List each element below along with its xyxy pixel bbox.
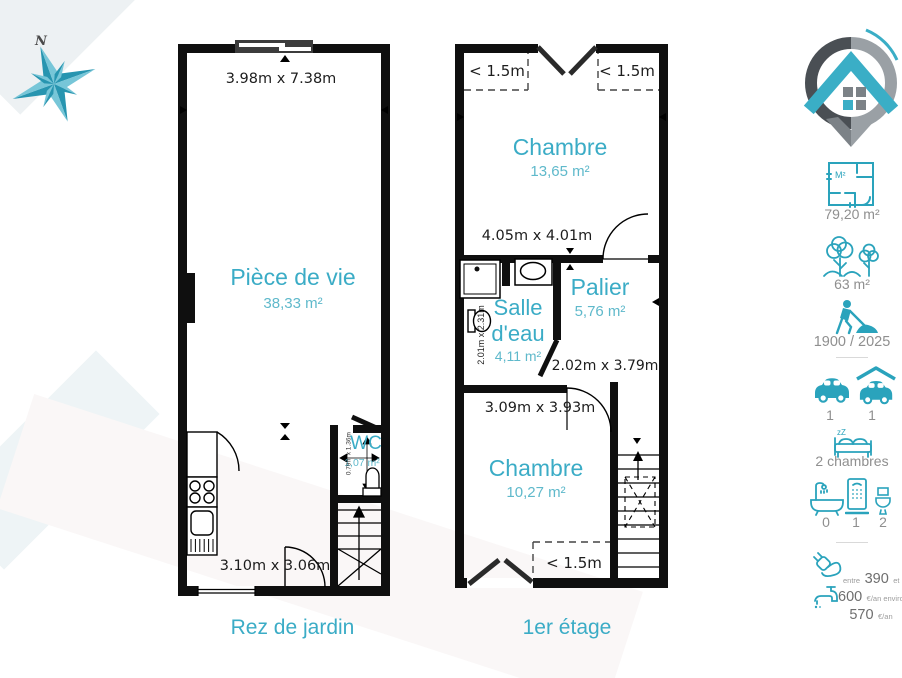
floorplan-page: N <box>0 0 902 678</box>
dim-landing: 2.02m x 3.79m <box>535 359 675 375</box>
years-value: 1900 / 2025 <box>806 334 898 350</box>
construction-worker-icon <box>828 299 880 335</box>
shower-icon <box>845 476 869 516</box>
plug-icon <box>812 551 844 581</box>
car-icon <box>813 373 851 403</box>
dim-bathroom: 2.01m x 2.31m <box>476 290 486 380</box>
window-top <box>235 40 313 62</box>
wc-toilet <box>363 468 381 496</box>
dim-bedroom1: 4.05m x 4.01m <box>462 228 612 244</box>
room-area-bedroom2: 10,27 m² <box>461 485 611 502</box>
floorplan-icon-badge: M² <box>835 170 846 180</box>
compass-north-label: N <box>35 35 47 50</box>
room-area-wc: 1,07 m² <box>331 458 393 470</box>
living-area-value: 79,20 m² <box>810 207 894 223</box>
floor-label-ground: Rez de jardin <box>210 616 375 640</box>
dim-wc: 0.79m x 1.36m <box>345 426 352 482</box>
toilet-count: 2 <box>873 515 893 531</box>
bathtub-icon <box>808 480 846 516</box>
room-label-living: Pièce de vie <box>203 265 383 291</box>
floor-plan-ground <box>178 40 390 600</box>
bedrooms-value: 2 chambres <box>810 454 894 470</box>
water-cost: 600 €/an environ <box>838 588 900 606</box>
room-area-living: 38,33 m² <box>203 296 383 313</box>
floor-label-first: 1er étage <box>487 616 647 640</box>
roof-window-bottom <box>467 560 533 588</box>
dim-living-bottom: 3.10m x 3.06m <box>197 558 353 574</box>
agency-logo <box>802 27 900 155</box>
toilet-icon <box>872 485 894 517</box>
stairs-first <box>618 438 659 567</box>
room-area-bedroom1: 13,65 m² <box>485 164 635 181</box>
sidebar-divider-2 <box>836 542 868 543</box>
attic-marker-bottom: < 1.5m <box>538 555 610 572</box>
dim-living-top: 3.98m x 7.38m <box>206 71 356 87</box>
room-label-bedroom1: Chambre <box>485 135 635 161</box>
compass-icon <box>8 44 100 128</box>
bathtub-count: 0 <box>816 515 836 531</box>
sidebar-divider-1 <box>836 357 868 358</box>
room-label-bathroom: Salle d'eau <box>477 295 559 347</box>
room-area-landing: 5,76 m² <box>545 304 655 321</box>
dim-bedroom2: 3.09m x 3.93m <box>465 400 615 416</box>
attic-marker-top-right: < 1.5m <box>591 63 663 80</box>
bed-icon-zzz: zZ <box>837 428 846 437</box>
window-bottom <box>198 586 255 596</box>
room-label-landing: Palier <box>545 275 655 301</box>
attic-marker-top-left: < 1.5m <box>461 63 533 80</box>
floorplan-icon: M² <box>826 161 876 209</box>
kitchen-fixtures <box>187 432 239 555</box>
shower-count: 1 <box>846 515 866 531</box>
trees-icon <box>820 234 884 280</box>
garage-count: 1 <box>862 408 882 424</box>
parking-count: 1 <box>820 408 840 424</box>
room-label-bedroom2: Chambre <box>461 456 611 482</box>
carport-icon <box>855 365 897 405</box>
roof-window-top <box>538 44 596 74</box>
tap-icon <box>810 585 838 609</box>
land-area-value: 63 m² <box>810 277 894 293</box>
